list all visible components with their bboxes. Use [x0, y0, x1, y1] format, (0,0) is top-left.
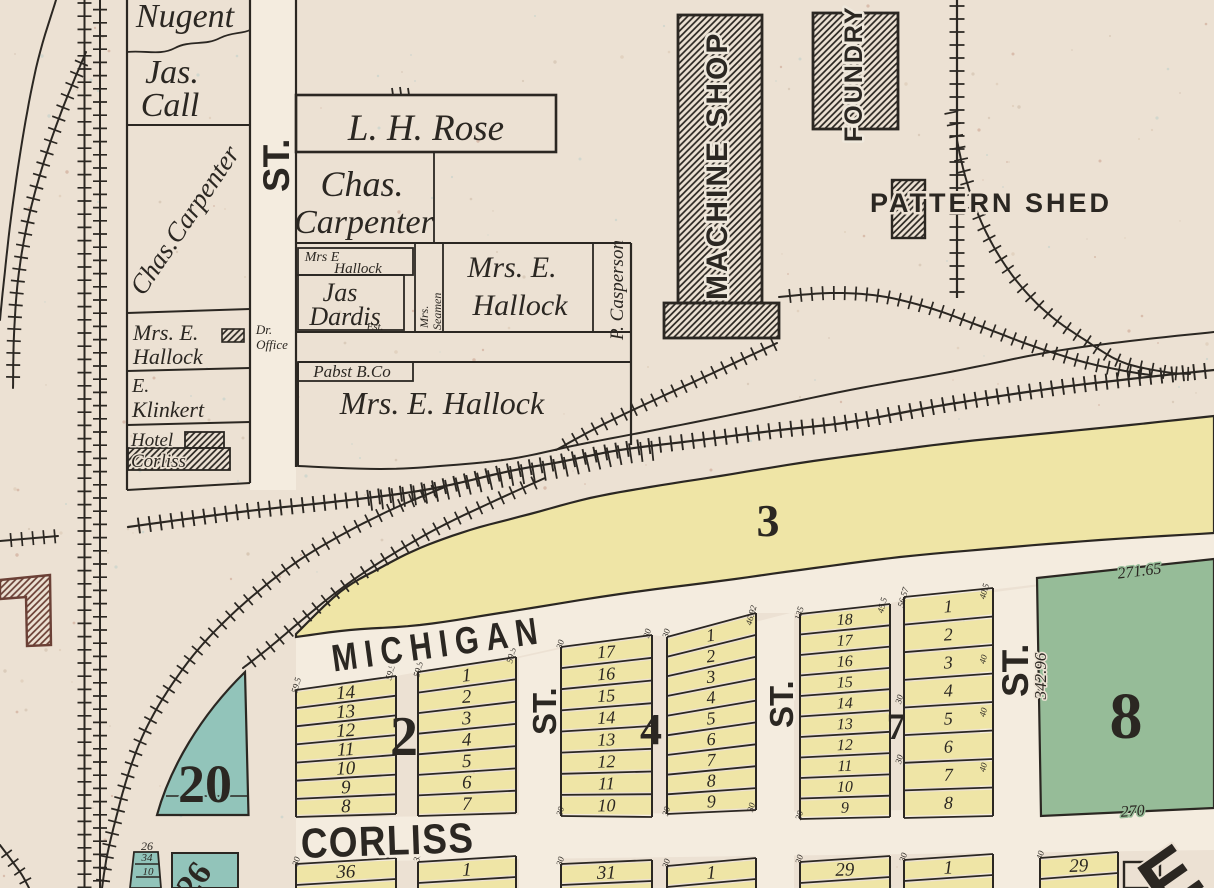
svg-text:16: 16 — [836, 653, 853, 671]
svg-text:Corliss: Corliss — [131, 451, 186, 472]
svg-text:Hallock: Hallock — [472, 289, 569, 322]
svg-text:10: 10 — [837, 779, 853, 796]
svg-text:8: 8 — [341, 796, 351, 817]
svg-text:10: 10 — [143, 866, 155, 878]
svg-text:ST.: ST. — [256, 139, 297, 192]
svg-text:ST.: ST. — [763, 680, 800, 728]
svg-text:11: 11 — [598, 773, 615, 793]
svg-text:4: 4 — [640, 705, 662, 754]
svg-text:PATTERN SHED: PATTERN SHED — [870, 188, 1112, 218]
svg-text:3: 3 — [942, 652, 953, 672]
svg-text:Seamen: Seamen — [430, 293, 444, 330]
svg-text:5: 5 — [706, 708, 717, 729]
svg-text:15: 15 — [836, 674, 853, 692]
svg-text:34: 34 — [141, 852, 154, 864]
svg-text:13: 13 — [837, 716, 854, 734]
svg-text:4: 4 — [705, 687, 716, 708]
svg-text:Call: Call — [141, 87, 200, 124]
svg-text:8: 8 — [944, 793, 953, 813]
svg-text:9: 9 — [706, 791, 716, 811]
svg-text:1: 1 — [461, 665, 472, 687]
svg-text:6: 6 — [462, 772, 473, 793]
svg-text:Dr.: Dr. — [255, 322, 272, 337]
svg-text:2: 2 — [390, 706, 418, 768]
svg-text:29: 29 — [835, 859, 855, 881]
svg-text:29: 29 — [1069, 855, 1089, 877]
svg-text:E.: E. — [131, 375, 149, 397]
svg-text:FOUNDRY: FOUNDRY — [840, 5, 868, 142]
svg-text:Hallock: Hallock — [132, 344, 204, 369]
svg-text:MACHINE SHOP: MACHINE SHOP — [701, 31, 734, 300]
svg-text:3: 3 — [757, 495, 780, 546]
svg-text:10: 10 — [597, 795, 615, 815]
svg-text:Mrs.: Mrs. — [417, 306, 431, 329]
svg-text:P. Casperson: P. Casperson — [607, 240, 628, 341]
svg-text:ST.: ST. — [526, 687, 563, 735]
svg-text:Carpenter: Carpenter — [294, 204, 435, 241]
svg-text:8: 8 — [706, 770, 716, 790]
svg-text:8: 8 — [1110, 680, 1143, 753]
svg-text:6: 6 — [706, 729, 716, 750]
svg-text:Mrs. E.: Mrs. E. — [132, 320, 198, 345]
svg-text:1: 1 — [462, 859, 472, 880]
svg-text:CORLISS: CORLISS — [300, 815, 475, 868]
svg-text:7: 7 — [944, 765, 954, 785]
svg-text:1: 1 — [706, 862, 716, 883]
svg-text:Nugent: Nugent — [135, 0, 236, 35]
svg-text:Office: Office — [256, 337, 288, 352]
svg-text:Klinkert: Klinkert — [131, 397, 205, 422]
svg-text:31: 31 — [596, 862, 616, 883]
svg-text:Pabst B.Co: Pabst B.Co — [312, 362, 390, 381]
svg-text:1: 1 — [943, 857, 953, 878]
svg-text:Jas.: Jas. — [145, 54, 199, 91]
svg-text:15: 15 — [597, 685, 616, 706]
svg-text:5: 5 — [943, 708, 953, 728]
svg-text:2: 2 — [461, 686, 472, 708]
svg-text:5: 5 — [462, 751, 472, 772]
svg-text:Mrs. E.: Mrs. E. — [466, 251, 556, 284]
svg-text:17: 17 — [596, 641, 616, 662]
svg-text:Est.: Est. — [366, 321, 384, 333]
svg-text:Hotel: Hotel — [130, 430, 173, 451]
svg-text:17: 17 — [836, 632, 854, 650]
svg-text:6: 6 — [944, 736, 954, 756]
svg-text:2: 2 — [943, 624, 953, 644]
svg-text:9: 9 — [841, 800, 849, 817]
svg-text:14: 14 — [597, 707, 616, 728]
svg-text:16: 16 — [597, 663, 616, 684]
svg-text:1: 1 — [943, 596, 953, 616]
svg-text:L. H. Rose: L. H. Rose — [347, 108, 504, 149]
svg-text:14: 14 — [837, 695, 854, 713]
svg-text:18: 18 — [836, 611, 853, 629]
svg-text:26: 26 — [141, 839, 153, 853]
svg-text:Mrs. E. Hallock: Mrs. E. Hallock — [339, 385, 545, 421]
svg-text:4: 4 — [943, 680, 953, 700]
svg-text:11: 11 — [837, 758, 852, 775]
svg-text:12: 12 — [597, 751, 615, 771]
svg-text:12: 12 — [837, 737, 853, 754]
svg-text:ST.: ST. — [995, 644, 1036, 697]
svg-text:270: 270 — [1120, 802, 1145, 821]
svg-text:7: 7 — [887, 707, 906, 748]
svg-text:20: 20 — [178, 754, 232, 814]
svg-text:3: 3 — [460, 708, 472, 730]
svg-text:Chas.: Chas. — [320, 164, 403, 204]
svg-text:13: 13 — [597, 729, 616, 750]
svg-text:4: 4 — [461, 729, 472, 750]
